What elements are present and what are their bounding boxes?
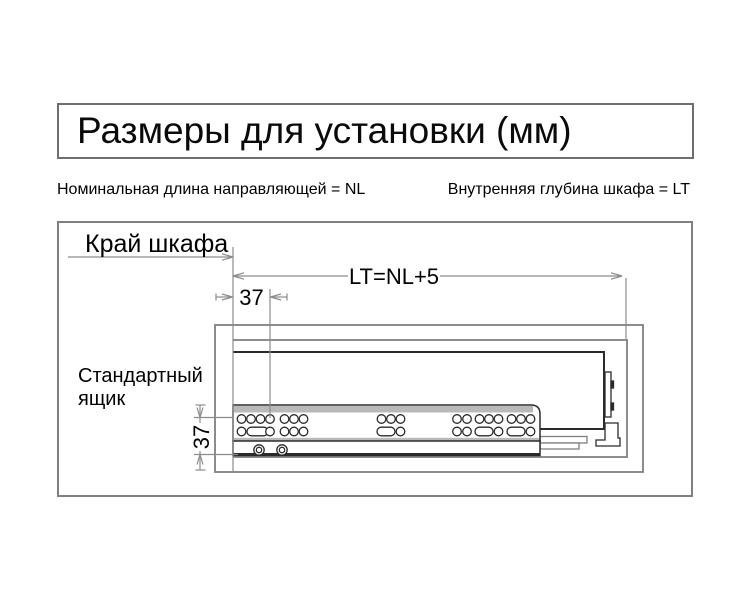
depth-dimension-label: LT=NL+5 [349, 264, 439, 289]
diagram-canvas: Край шкафа LT=NL+5 37 37 Стандартный ящи… [57, 221, 693, 497]
cabinet-edge-label: Край шкафа [85, 230, 228, 258]
rail-mounting-holes-row2 [237, 427, 535, 436]
page-background: Размеры для установки (мм) Номинальная д… [0, 0, 750, 600]
front-offset-value: 37 [239, 285, 263, 310]
legend-nominal-length: Номинальная длина направляющей = NL [57, 181, 365, 199]
legend-row: Номинальная длина направляющей = NL Внут… [57, 181, 690, 199]
legend-cabinet-depth: Внутренняя глубина шкафа = LT [448, 181, 690, 199]
title-box: Размеры для установки (мм) [57, 103, 694, 159]
page-title: Размеры для установки (мм) [59, 110, 572, 152]
drawer-label-line1: Стандартный [78, 365, 203, 387]
slide-rear-profile [540, 437, 587, 450]
rail-top-band [234, 406, 533, 413]
drawer-slide-rail [233, 405, 540, 456]
drawer-label-line2: ящик [78, 388, 125, 410]
installation-diagram: Край шкафа LT=NL+5 37 37 Стандартный ящи… [57, 221, 693, 497]
bottom-offset-value: 37 [189, 425, 214, 449]
